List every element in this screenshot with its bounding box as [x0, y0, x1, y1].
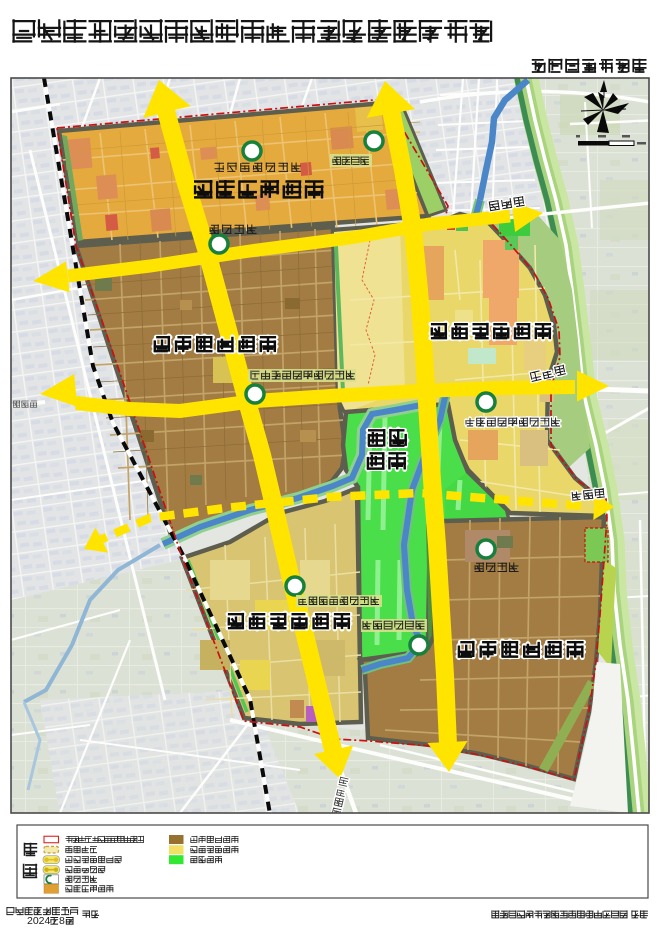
svg-text:2024: 2024: [27, 915, 51, 927]
svg-text:8: 8: [59, 915, 65, 927]
